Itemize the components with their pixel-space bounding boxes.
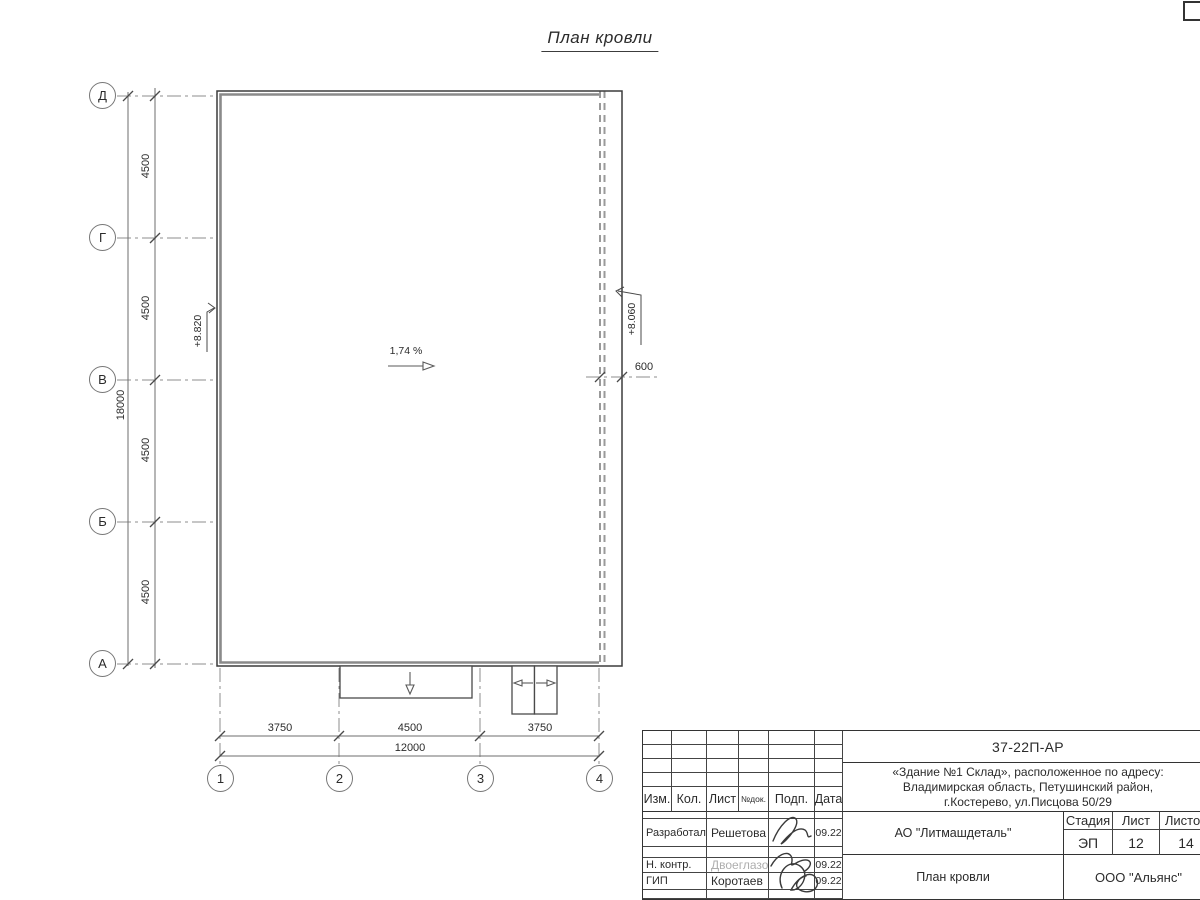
dimension-ticks xyxy=(123,91,627,761)
address-line-3: г.Костерево, ул.Писцова 50/29 xyxy=(944,795,1112,810)
stage-grid: Стадия Лист Листов ЭП 12 14 xyxy=(1064,812,1200,855)
drawing-title-band: План кровли ООО "Альянс" xyxy=(843,855,1200,899)
sheet-value: 12 xyxy=(1113,830,1160,855)
col-header-izm: Изм. xyxy=(643,787,672,812)
canopies xyxy=(340,666,557,714)
elevation-leaders xyxy=(207,287,641,352)
dim-left-segment-0: 4500 xyxy=(140,136,152,196)
col-header-list: Лист xyxy=(707,787,739,812)
axis-bubble-row-4: А xyxy=(89,650,116,677)
design-org: ООО "Альянс" xyxy=(1064,855,1200,899)
date-developer: 09.22 xyxy=(815,819,843,847)
dim-left-segment-1: 4500 xyxy=(140,278,152,338)
dim-left-segment-2: 4500 xyxy=(140,420,152,480)
elevation-mark-right: +8.060 xyxy=(626,289,638,349)
axis-bubble-col-3: 3 xyxy=(467,765,494,792)
dim-left-segment-3: 4500 xyxy=(140,562,152,622)
dim-bottom-segment-1: 4500 xyxy=(380,722,440,734)
date-gip: 09.22 xyxy=(815,873,843,890)
axis-bubble-row-3: Б xyxy=(89,508,116,535)
doc-number: 37-22П-АР xyxy=(843,731,1200,763)
roof-plan-sheet: { "title": "План кровли", "colors": { "m… xyxy=(0,0,1200,900)
role-developer: Разработал xyxy=(643,819,707,847)
date-norm-control: 09.22 xyxy=(815,858,843,873)
axis-lines xyxy=(117,96,661,764)
signature-cell-norm-control xyxy=(769,858,815,873)
name-gip: Коротаев xyxy=(707,873,769,890)
role-gip: ГИП xyxy=(643,873,707,890)
axis-bubble-col-1: 1 xyxy=(207,765,234,792)
sheets-value: 14 xyxy=(1160,830,1200,855)
stage-value: ЭП xyxy=(1064,830,1113,855)
dim-bottom-segment-2: 3750 xyxy=(510,722,570,734)
canopy-slope-right-label: 26,6% xyxy=(531,693,561,700)
name-developer: Решетова xyxy=(707,819,769,847)
sheet-label: Лист xyxy=(1113,812,1160,830)
slope-arrows xyxy=(388,362,555,694)
name-norm-control: Двоеглазов xyxy=(707,858,769,873)
role-norm-control: Н. контр. xyxy=(643,858,707,873)
dim-roof-overhang: 600 xyxy=(624,361,664,373)
client-company: АО "Литмашдеталь" xyxy=(843,812,1064,854)
col-header-data: Дата xyxy=(815,787,843,812)
address-line-1: «Здание №1 Склад», расположенное по адре… xyxy=(892,765,1163,780)
wall-dashed-lines xyxy=(600,91,605,666)
signature-cell-developer xyxy=(769,819,815,847)
dimension-lines xyxy=(128,88,599,756)
elevation-mark-left: +8.820 xyxy=(192,301,204,361)
axis-bubble-row-1: Г xyxy=(89,224,116,251)
sheets-label: Листов xyxy=(1160,812,1200,830)
canopy-slope-main-label: 26,8% xyxy=(417,676,440,685)
title-block-revision-table: Изм. Кол. Лист №док. Подп. Дата Разработ… xyxy=(642,730,845,900)
title-block-main: 37-22П-АР «Здание №1 Склад», расположенн… xyxy=(843,730,1200,900)
dim-bottom-total: 12000 xyxy=(380,742,440,754)
axis-bubble-row-2: В xyxy=(89,366,116,393)
company-stage-band: АО "Литмашдеталь" Стадия Лист Листов ЭП … xyxy=(843,812,1200,855)
axis-bubble-col-2: 2 xyxy=(326,765,353,792)
page-title: План кровли xyxy=(541,28,658,52)
main-slope-label: 1,74 % xyxy=(376,345,436,357)
address-line-2: Владимирская область, Петушинский район, xyxy=(903,780,1153,795)
project-address: «Здание №1 Склад», расположенное по адре… xyxy=(843,763,1200,812)
frame-corner xyxy=(1184,2,1200,20)
drawing-title: План кровли xyxy=(843,855,1064,899)
col-header-ndok: №док. xyxy=(739,787,769,812)
dim-bottom-segment-0: 3750 xyxy=(250,722,310,734)
signature-cell-gip xyxy=(769,873,815,890)
revision-cell xyxy=(643,731,672,745)
col-header-podp: Подп. xyxy=(769,787,815,812)
axis-bubble-row-0: Д xyxy=(89,82,116,109)
building-outline xyxy=(217,91,622,666)
dim-left-total: 18000 xyxy=(115,375,127,435)
axis-bubble-col-4: 4 xyxy=(586,765,613,792)
col-header-kol: Кол. xyxy=(672,787,707,812)
stage-label: Стадия xyxy=(1064,812,1113,830)
